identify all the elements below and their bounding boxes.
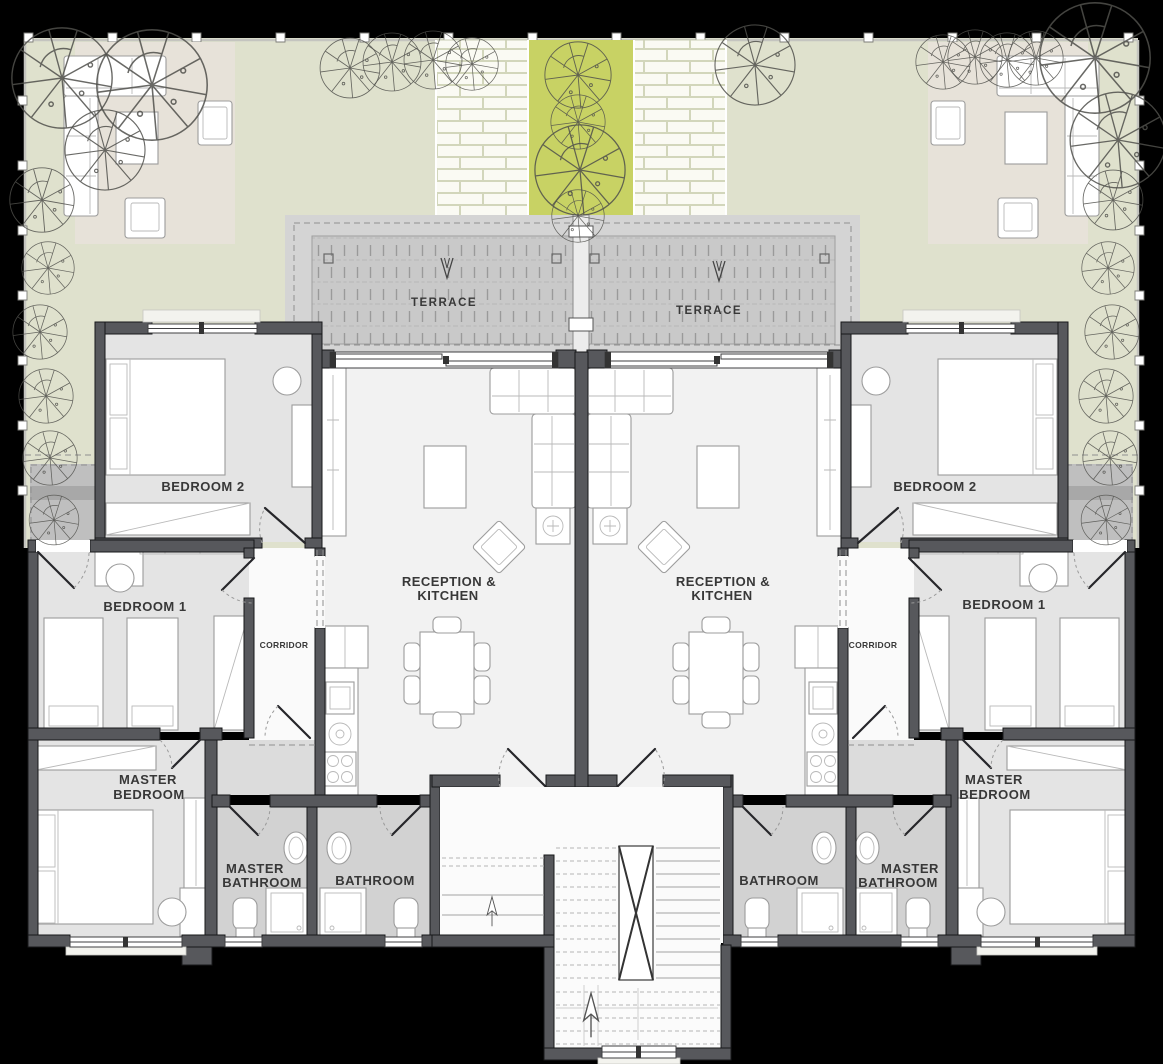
stove — [324, 752, 356, 786]
master-bathroom-label-left-line2: BATHROOM — [222, 875, 302, 890]
corridor-label-right: CORRIDOR — [849, 640, 898, 650]
master-bedroom-label-right-line1: MASTER — [965, 772, 1023, 787]
terrace-sliding-door — [330, 352, 558, 368]
side-table — [536, 508, 570, 544]
bathroom-label-right: BATHROOM — [739, 873, 819, 888]
bedroom1-desk — [95, 550, 143, 592]
bedroom2-chair — [273, 367, 301, 395]
vestibule-floor — [217, 740, 315, 795]
bedroom1-wardrobe — [214, 616, 248, 730]
master-bathroom-label-left-line1: MASTER — [226, 861, 284, 876]
toilet — [394, 898, 418, 938]
master-bedroom-label-left-line2: BEDROOM — [113, 787, 184, 802]
reception-label-right-line2: KITCHEN — [691, 588, 752, 603]
master-wardrobe — [36, 746, 156, 770]
bedroom2-bed — [106, 359, 225, 475]
floor-plan: TERRACE TERRACE BEDROOM 2 RECEPTION & KI… — [0, 0, 1163, 1064]
bedroom1-twin-bed — [44, 618, 103, 730]
bedroom2-label-right: BEDROOM 2 — [893, 479, 976, 494]
outdoor-armchair — [125, 198, 165, 238]
terrace-label-right: TERRACE — [676, 305, 742, 317]
floor-plan-page: TERRACE TERRACE BEDROOM 2 RECEPTION & KI… — [0, 0, 1163, 1064]
bedroom2-wardrobe — [106, 503, 250, 535]
reception-label-left-line2: KITCHEN — [417, 588, 478, 603]
bedroom1-twin-bed — [127, 618, 178, 730]
master-bedroom-window — [66, 937, 186, 955]
master-bathroom-label-right-line1: MASTER — [881, 861, 939, 876]
toilet — [233, 898, 257, 938]
hall-window — [598, 1046, 680, 1064]
party-wall — [575, 352, 588, 787]
corridor-label-left: CORRIDOR — [260, 640, 309, 650]
terrace-label-left: TERRACE — [411, 297, 477, 309]
terrace-divider — [569, 215, 593, 352]
master-closet — [184, 798, 208, 888]
shower — [320, 888, 366, 937]
bedroom1-label-left: BEDROOM 1 — [103, 599, 186, 614]
reception-label-left-line1: RECEPTION & — [402, 574, 496, 589]
bedroom2-window — [143, 310, 260, 334]
master-chair — [158, 898, 186, 926]
reception-wardrobe — [320, 368, 346, 536]
reception-label-right-line1: RECEPTION & — [676, 574, 770, 589]
master-bathroom-label-right-line2: BATHROOM — [858, 875, 938, 890]
shower — [266, 888, 308, 937]
bedroom2-label-left: BEDROOM 2 — [161, 479, 244, 494]
bathroom-label-left: BATHROOM — [335, 873, 415, 888]
master-bedroom-label-left-line1: MASTER — [119, 772, 177, 787]
bedroom2-vanity — [292, 405, 314, 487]
coffee-table — [424, 446, 466, 508]
bathroom-window — [385, 937, 422, 947]
terrace — [285, 215, 860, 352]
bedroom1-label-right: BEDROOM 1 — [962, 597, 1045, 612]
master-bed — [34, 810, 153, 924]
master-bedroom-label-right-line2: BEDROOM — [959, 787, 1030, 802]
master-bathroom-window — [225, 937, 262, 947]
